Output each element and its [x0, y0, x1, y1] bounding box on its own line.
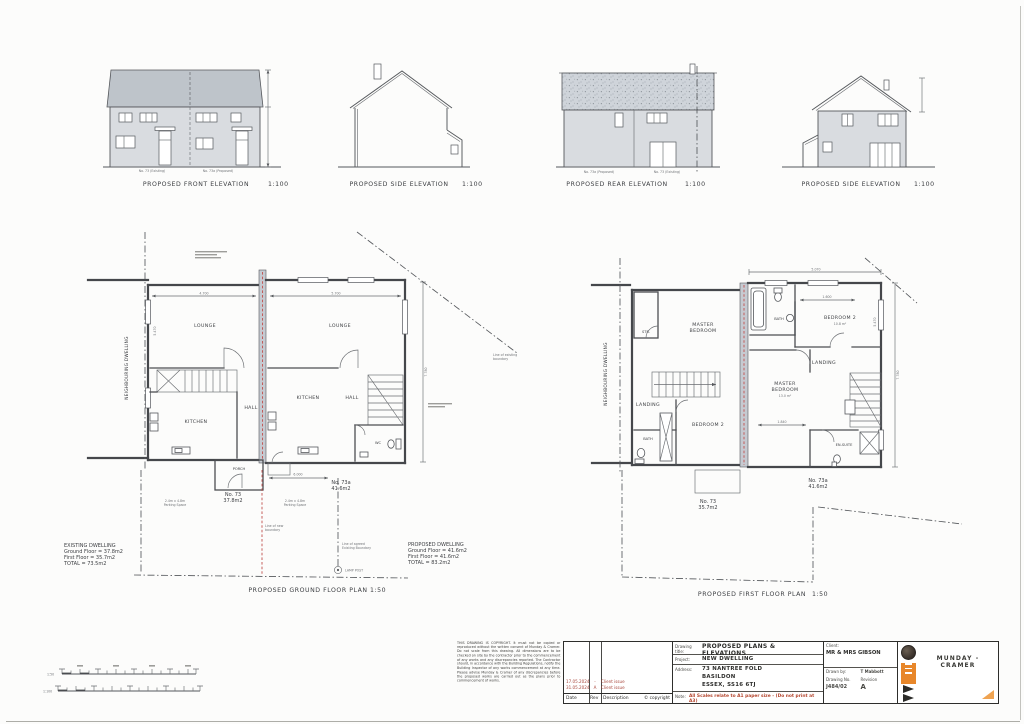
svg-text:7.780: 7.780 — [896, 370, 900, 379]
svg-text:5.070: 5.070 — [811, 267, 820, 271]
ground-floor-plan: NEIGHBOURING DWELLING PORCH LOUNGE KITCH… — [63, 232, 517, 594]
gf-kitchen-left-label: KITCHEN — [185, 419, 208, 425]
svg-text:4.700: 4.700 — [199, 291, 208, 295]
ff-right-master-walls — [750, 350, 810, 372]
basin-icon — [360, 452, 368, 457]
gf-no73a-area: 41.6m2 — [331, 486, 350, 492]
client-name: MR & MRS GIBSON — [826, 650, 895, 656]
rear-elevation: No. 73a (Proposed) No. 73 (Existing) PRO… — [556, 64, 720, 188]
svg-text:5.700: 5.700 — [331, 291, 340, 295]
front-dimension-line — [265, 70, 271, 167]
basin-icon — [786, 314, 793, 321]
ff-master-left-label: MASTER — [692, 322, 714, 328]
ff-bed2-right-label: BEDROOM 2 — [824, 315, 856, 321]
gf-proposed-summary: PROPOSED DWELLING Ground Floor = 41.6m2 … — [407, 542, 467, 566]
svg-text:Existing Boundary: Existing Boundary — [342, 546, 371, 550]
svg-text:Parking Space: Parking Space — [284, 503, 307, 507]
svg-text:5.470: 5.470 — [873, 317, 877, 326]
gf-existing-summary: EXISTING DWELLING Ground Floor = 37.8m2 … — [63, 543, 123, 567]
svg-text:6.000: 6.000 — [293, 473, 302, 477]
revision-row: 31.05.2024 A Client issue — [564, 685, 672, 691]
ff-landing-left-label: LANDING — [636, 402, 660, 408]
ff-left-bath-fixtures — [635, 413, 672, 464]
first-floor-plan: NEIGHBOURING DWELLING STR. MASTER BEDROO… — [592, 258, 962, 598]
ff-caption-scale: 1:50 — [812, 591, 828, 598]
svg-text:BEDROOM: BEDROOM — [690, 328, 717, 334]
gf-lamp-label: LAMP POST — [345, 569, 363, 573]
gf-right-stairs — [368, 375, 403, 425]
scale-bar-top-label: 1:50 — [47, 673, 54, 677]
gf-right-kitchen-fixtures — [268, 412, 318, 454]
ff-master-right-label: MASTER — [774, 381, 796, 387]
drawing-sheet: No. 73 (Existing) No. 73a (Proposed) PRO… — [0, 0, 1024, 724]
front-elevation-scale: 1:100 — [268, 181, 289, 188]
rear-elevation-title: PROPOSED REAR ELEVATION — [566, 181, 667, 188]
ff-str-label: STR. — [642, 330, 650, 334]
revision-table: 17.05.2024 - Client issue 31.05.2024 A C… — [564, 642, 673, 703]
copyright-mark: © copyright — [642, 696, 672, 701]
rear-elevation-scale: 1:100 — [685, 181, 706, 188]
scale-bars: 1:50 1:100 — [43, 665, 203, 694]
ff-ensuite — [810, 430, 879, 467]
gf-kitchen-right-label: KITCHEN — [297, 395, 320, 401]
front-elevation: No. 73 (Existing) No. 73a (Proposed) PRO… — [103, 70, 289, 188]
gf-porch — [215, 460, 263, 490]
logo-chevron-icon — [903, 694, 914, 702]
svg-text:Parking Space: Parking Space — [164, 503, 187, 507]
copyright-disclaimer: THIS DRAWING IS COPYRIGHT. It must not b… — [457, 641, 560, 683]
front-elevation-title: PROPOSED FRONT ELEVATION — [143, 181, 249, 188]
side-left-elevation-scale: 1:100 — [462, 181, 483, 188]
svg-text:TOTAL = 73.5m2: TOTAL = 73.5m2 — [63, 561, 106, 567]
gf-caption: PROPOSED GROUND FLOOR PLAN — [248, 587, 367, 594]
ff-no73-area: 35.7m2 — [698, 505, 717, 511]
side-left-elevation-title: PROPOSED SIDE ELEVATION — [349, 181, 448, 188]
ff-right-stairs — [845, 373, 881, 427]
svg-text:1.840: 1.840 — [777, 420, 786, 424]
company-name: MUNDAY - CRAMER — [921, 655, 995, 669]
rear-right-house-label: No. 73 (Existing) — [654, 170, 681, 174]
ff-neighbour-label: NEIGHBOURING DWELLING — [603, 342, 609, 405]
ff-no73a-area: 41.6m2 — [808, 484, 827, 490]
front-left-house-label: No. 73 (Existing) — [139, 169, 166, 173]
svg-text:5.470: 5.470 — [153, 326, 157, 335]
company-logo — [901, 645, 917, 700]
svg-text:BEDROOM: BEDROOM — [772, 387, 799, 393]
gf-lounge-right-label: LOUNGE — [329, 323, 351, 329]
side-elevation-right: PROPOSED SIDE ELEVATION 1:100 — [782, 76, 935, 188]
drawing-info: Drawing title: PROPOSED PLANS & ELEVATIO… — [673, 642, 824, 703]
scan-edge-bottom — [6, 721, 1020, 722]
gf-neighbour-label: NEIGHBOURING DWELLING — [124, 336, 130, 399]
gf-left-stairs — [157, 370, 237, 392]
side-right-elevation-title: PROPOSED SIDE ELEVATION — [801, 181, 900, 188]
project-address: 73 NANTREE FOLD BASILDON ESSEX, SS16 6TJ — [702, 666, 762, 690]
drawing-canvas: No. 73 (Existing) No. 73a (Proposed) PRO… — [0, 0, 1024, 724]
gf-dimensions: 4.700 5.700 5.470 7.780 6.000 — [152, 282, 428, 479]
logo-orange-block — [901, 663, 916, 684]
toilet-icon — [388, 440, 394, 448]
gf-caption-scale: 1:50 — [370, 587, 386, 594]
logo-chevron-icon — [903, 685, 914, 693]
toilet-icon — [775, 293, 782, 302]
svg-text:TOTAL = 83.2m2: TOTAL = 83.2m2 — [407, 560, 450, 566]
ff-ensuite-label: EN-SUITE — [836, 443, 853, 447]
drawing-title: PROPOSED PLANS & ELEVATIONS — [702, 643, 821, 653]
svg-text:boundary: boundary — [493, 357, 508, 361]
front-right-house-label: No. 73a (Proposed) — [203, 169, 234, 173]
svg-text:1.600: 1.600 — [822, 295, 831, 299]
ff-caption: PROPOSED FIRST FLOOR PLAN — [698, 591, 806, 598]
side-elevation-left: PROPOSED SIDE ELEVATION 1:100 — [338, 64, 483, 188]
scan-edge-right — [1020, 6, 1021, 720]
ff-left-stairs — [652, 372, 720, 397]
project-name: NEW DWELLING — [702, 656, 754, 663]
paper-size-note: All Scales relate to A1 paper size - (Do… — [689, 693, 821, 700]
ff-master-right-area: 13.0 m² — [779, 394, 792, 398]
revision-table-header: Date Rev Description © copyright — [564, 693, 672, 703]
company-panel: MUNDAY - CRAMER — [898, 642, 998, 703]
ff-bed2-right-area: 10.8 m² — [834, 322, 847, 326]
ff-landing-right-label: LANDING — [812, 360, 836, 366]
ff-right-bath — [750, 285, 795, 335]
svg-text:boundary: boundary — [265, 528, 280, 532]
gf-porch-label: PORCH — [233, 467, 246, 471]
rear-left-house-label: No. 73a (Proposed) — [584, 170, 615, 174]
gf-wc-label: WC — [375, 441, 382, 445]
drawn-by: T Mabbott — [861, 669, 896, 674]
gf-hall-right-label: HALL — [345, 395, 358, 401]
ff-bed2-left-label: BEDROOM 2 — [692, 422, 724, 428]
ff-bath-right-label: BATH — [774, 317, 784, 321]
lamp-post-icon — [334, 566, 341, 573]
gf-no73-area: 37.8m2 — [223, 498, 242, 504]
side-right-elevation-scale: 1:100 — [914, 181, 935, 188]
drawing-number: J484/02 — [826, 684, 861, 690]
gf-lounge-left-label: LOUNGE — [194, 323, 216, 329]
logo-emblem-icon — [901, 645, 916, 660]
orange-corner-triangle — [982, 690, 994, 699]
title-block: 17.05.2024 - Client issue 31.05.2024 A C… — [563, 641, 999, 704]
svg-text:7.780: 7.780 — [424, 367, 428, 376]
gf-hall-left-label: HALL — [244, 405, 257, 411]
client-info: Client: MR & MRS GIBSON Drawn by: Drawin… — [824, 642, 898, 703]
toilet-icon — [637, 448, 645, 457]
ff-bath-left-label: BATH — [643, 437, 653, 441]
revision-letter: A — [861, 683, 896, 691]
scale-bar-bottom-label: 1:100 — [43, 690, 52, 694]
